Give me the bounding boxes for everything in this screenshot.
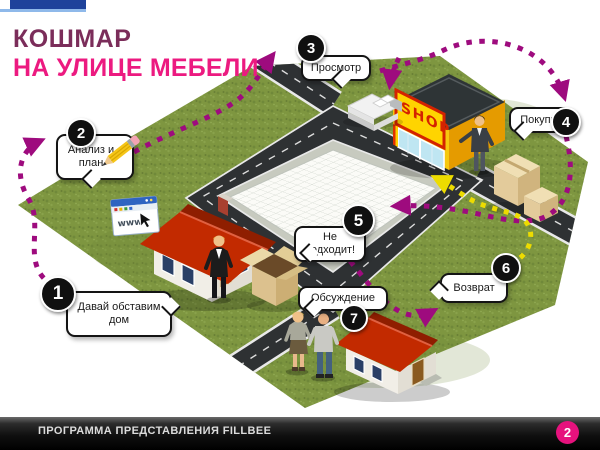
step-number-5: 5 [342, 204, 375, 237]
footer-text: ПРОГРАММА ПРЕДСТАВЛЕНИЯ FILLBEE [38, 425, 271, 437]
step-bubble-1: Давай обставим дом [66, 291, 172, 337]
accent-bar [10, 0, 86, 9]
step-number-3: 3 [296, 33, 326, 63]
slide: SHOP [0, 0, 600, 450]
step-label-1: Давай обставим дом [74, 301, 164, 327]
step-number-7: 7 [340, 304, 368, 332]
step-number-4: 4 [551, 107, 581, 137]
slide-title-line2: НА УЛИЦЕ МЕБЕЛИ [13, 54, 259, 83]
step-label-7: Обсуждение [311, 292, 375, 305]
step-number-1: 1 [40, 276, 76, 312]
accent-line [0, 9, 86, 12]
footer-bar: ПРОГРАММА ПРЕДСТАВЛЕНИЯ FILLBEE 2 [0, 417, 600, 450]
page-number-badge: 2 [556, 421, 579, 444]
slide-title-line1: КОШМАР [13, 25, 131, 54]
step-label-6: Возврат [453, 282, 494, 295]
step-number-6: 6 [491, 253, 521, 283]
pencil-icon [88, 132, 146, 182]
browser-window-icon: www [111, 196, 160, 236]
